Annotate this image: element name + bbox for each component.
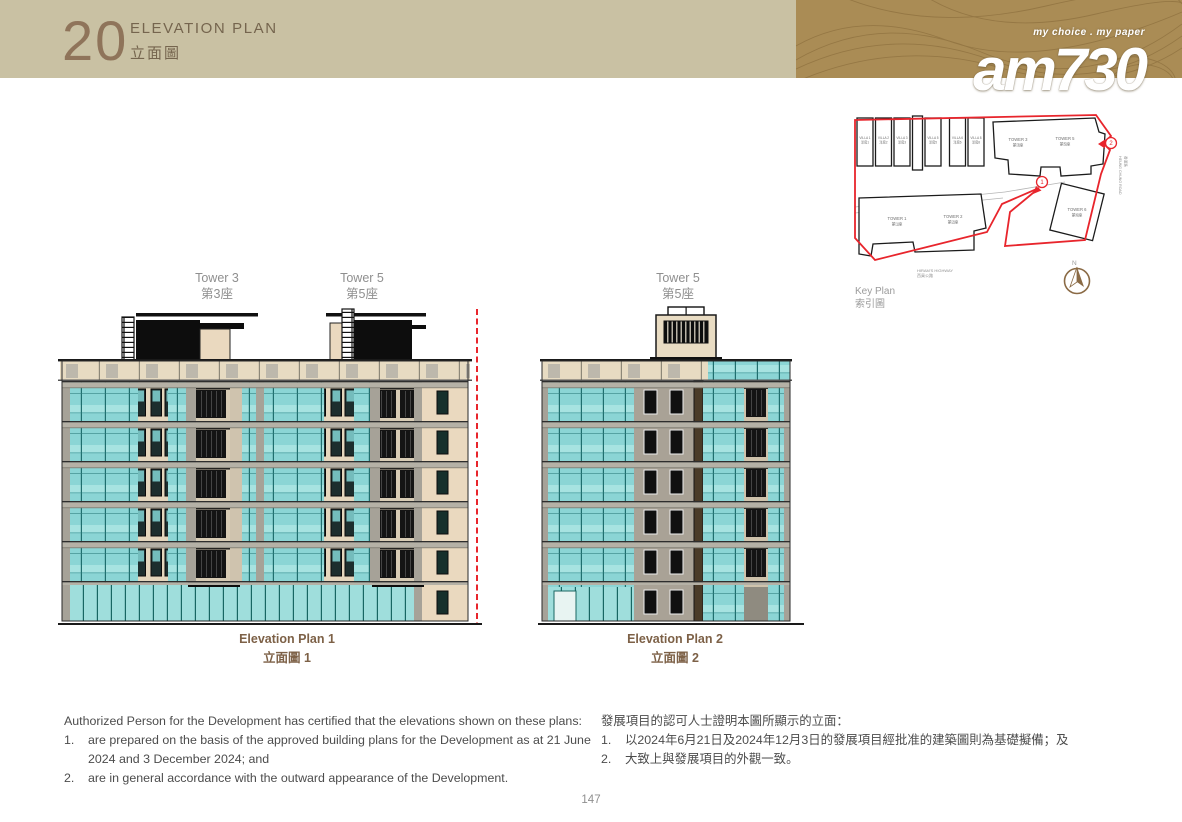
north-arrow-icon: N bbox=[1065, 260, 1090, 294]
notes-chinese: 發展項目的認可人士證明本圖所顯示的立面： 1. 以2024年6月21日及2024… bbox=[601, 712, 1141, 769]
tower5-label-plan2: Tower 5 第5座 bbox=[628, 270, 728, 302]
notes-zh-item-2: 2. 大致上與發展項目的外觀一致。 bbox=[601, 750, 1141, 769]
keyplan-villa3-zh: 洋房3 bbox=[898, 140, 906, 145]
brochure-page: 20 ELEVATION PLAN 立面圖 my choice . my pap… bbox=[0, 0, 1182, 822]
keyplan-tower3-en: TOWER 3 bbox=[1008, 137, 1028, 142]
key-plan-label-zh: 索引圖 bbox=[855, 298, 895, 311]
keyplan-tower3-zh: 第3座 bbox=[1013, 142, 1024, 149]
logo-brand: am730 bbox=[930, 40, 1145, 100]
elevation-drawing-1 bbox=[58, 303, 482, 633]
svg-text:N: N bbox=[1072, 260, 1077, 267]
page-number: 147 bbox=[541, 794, 641, 806]
key-plan-label-en: Key Plan bbox=[855, 285, 895, 298]
keyplan-tower6-zh: 第6座 bbox=[1072, 212, 1083, 219]
keyplan-villa6-zh: 洋房6 bbox=[953, 140, 961, 145]
keyplan-villa5-zh: 洋房5 bbox=[929, 140, 937, 145]
notes-en-item-1: 1. are prepared on the basis of the appr… bbox=[64, 731, 609, 769]
keyplan-tower2-en: TOWER 2 bbox=[943, 214, 963, 219]
notes-zh-intro: 發展項目的認可人士證明本圖所顯示的立面： bbox=[601, 712, 1141, 731]
road-hirams-highway-zh: 西貢公路 bbox=[917, 272, 933, 278]
keyplan-villa2-en: VILLA 2 bbox=[878, 136, 889, 140]
road-heung-chung-en: HEUNG CHUNG ROAD bbox=[1118, 156, 1122, 195]
tower5-label-plan1: Tower 5 第5座 bbox=[312, 270, 412, 302]
keyplan-villa6-en: VILLA 6 bbox=[952, 136, 963, 140]
keyplan-villa1-zh: 洋房1 bbox=[861, 140, 869, 145]
key-plan-label: Key Plan 索引圖 bbox=[855, 285, 895, 311]
notes-en-item-2: 2. are in general accordance with the ou… bbox=[64, 769, 609, 788]
elevation-plan-1-caption: Elevation Plan 1 立面圖 1 bbox=[187, 631, 387, 666]
key-plan: VILLA 1 洋房1 VILLA 2 洋房2 VILLA 3 洋房3 VILL… bbox=[853, 110, 1135, 302]
elevation-marker-1: 1 bbox=[1033, 177, 1048, 195]
keyplan-villa8-en: VILLA 8 bbox=[970, 136, 981, 140]
keyplan-villa5-en: VILLA 5 bbox=[927, 136, 938, 140]
keyplan-villa2-zh: 洋房2 bbox=[879, 140, 887, 145]
keyplan-villa3-en: VILLA 3 bbox=[896, 136, 907, 140]
am730-logo: my choice . my paper am730 bbox=[930, 28, 1145, 100]
elevation-plan-2-caption: Elevation Plan 2 立面圖 2 bbox=[575, 631, 775, 666]
road-heung-chung-zh: 香涌路 bbox=[1124, 156, 1129, 167]
keyplan-tower1-en: TOWER 1 bbox=[887, 216, 907, 221]
notes-zh-item-1: 1. 以2024年6月21日及2024年12月3日的發展項目經批准的建築圖則為基… bbox=[601, 731, 1141, 750]
keyplan-tower1-zh: 第1座 bbox=[892, 221, 903, 228]
elevation-drawing-2 bbox=[538, 303, 804, 633]
tower3-label: Tower 3 第3座 bbox=[167, 270, 267, 302]
keyplan-tower2-zh: 第2座 bbox=[948, 219, 959, 226]
chapter-number: 20 bbox=[62, 8, 128, 73]
page-title-en: ELEVATION PLAN bbox=[130, 20, 278, 37]
notes-english: Authorized Person for the Development ha… bbox=[64, 712, 609, 788]
page-title-zh: 立面圖 bbox=[130, 42, 278, 63]
keyplan-tower5-en: TOWER 5 bbox=[1055, 136, 1075, 141]
notes-en-intro: Authorized Person for the Development ha… bbox=[64, 712, 609, 731]
keyplan-villa1-en: VILLA 1 bbox=[859, 136, 870, 140]
keyplan-tower5-zh: 第5座 bbox=[1060, 141, 1071, 148]
keyplan-tower6-en: TOWER 6 bbox=[1067, 207, 1087, 212]
page-title: ELEVATION PLAN 立面圖 bbox=[130, 20, 278, 63]
keyplan-villa8-zh: 洋房8 bbox=[972, 140, 980, 145]
